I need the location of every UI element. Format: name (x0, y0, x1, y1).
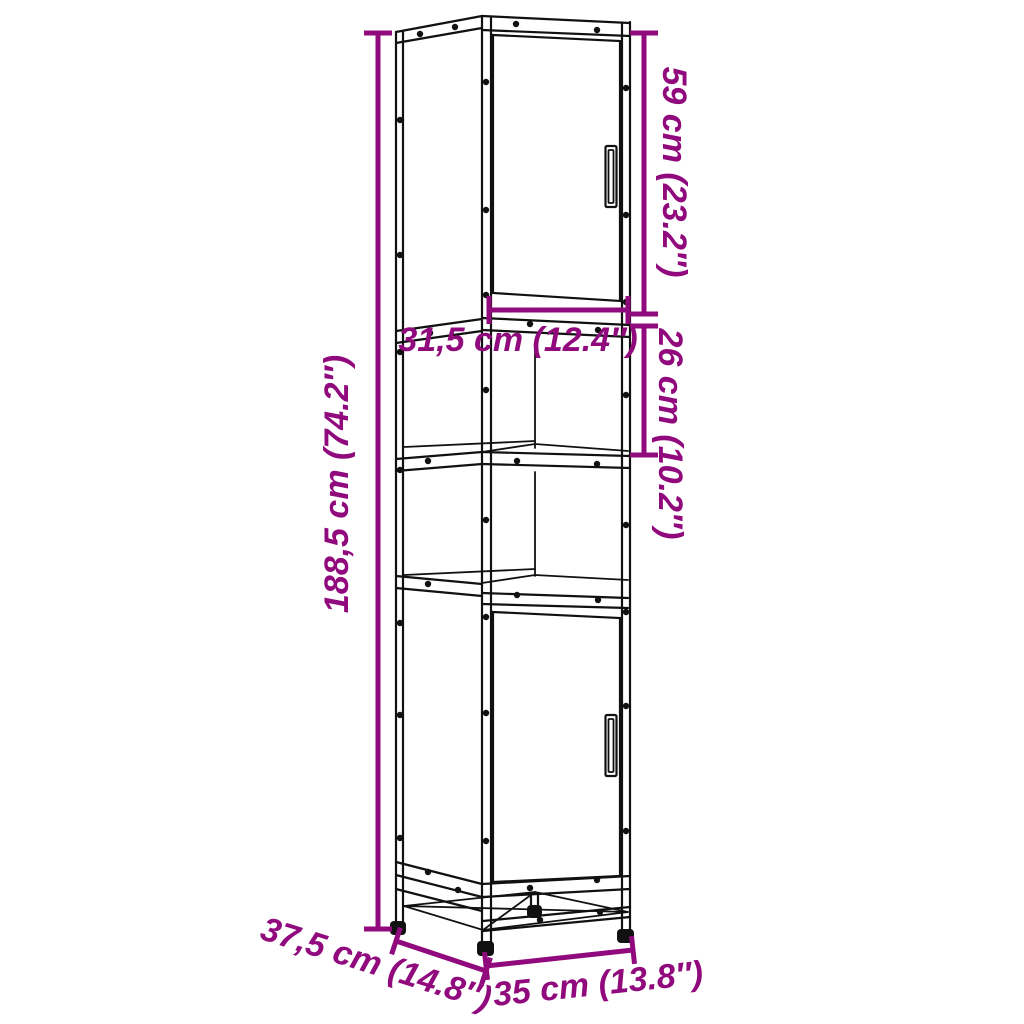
overall-height-label: 188,5 cm (74.2″) (320, 355, 354, 613)
top-door (493, 35, 620, 301)
cabinet-line-art (0, 0, 1024, 1024)
bottom-door (493, 612, 620, 882)
dim-line-overall-height (364, 33, 392, 929)
top-door-height-label: 59 cm (23.2″) (657, 67, 691, 278)
bottom-door-handle (606, 715, 617, 776)
top-door-handle (606, 146, 617, 207)
dimension-diagram: 188,5 cm (74.2″) 59 cm (23.2″) 26 cm (10… (0, 0, 1024, 1024)
open-shelf-height-label: 26 cm (10.2″) (653, 329, 687, 540)
dim-line-top-door-height (630, 33, 658, 314)
screw-dots (397, 21, 629, 923)
inner-width-label: 31,5 cm (12.4″) (398, 323, 637, 357)
cabinet-frame (396, 16, 630, 945)
